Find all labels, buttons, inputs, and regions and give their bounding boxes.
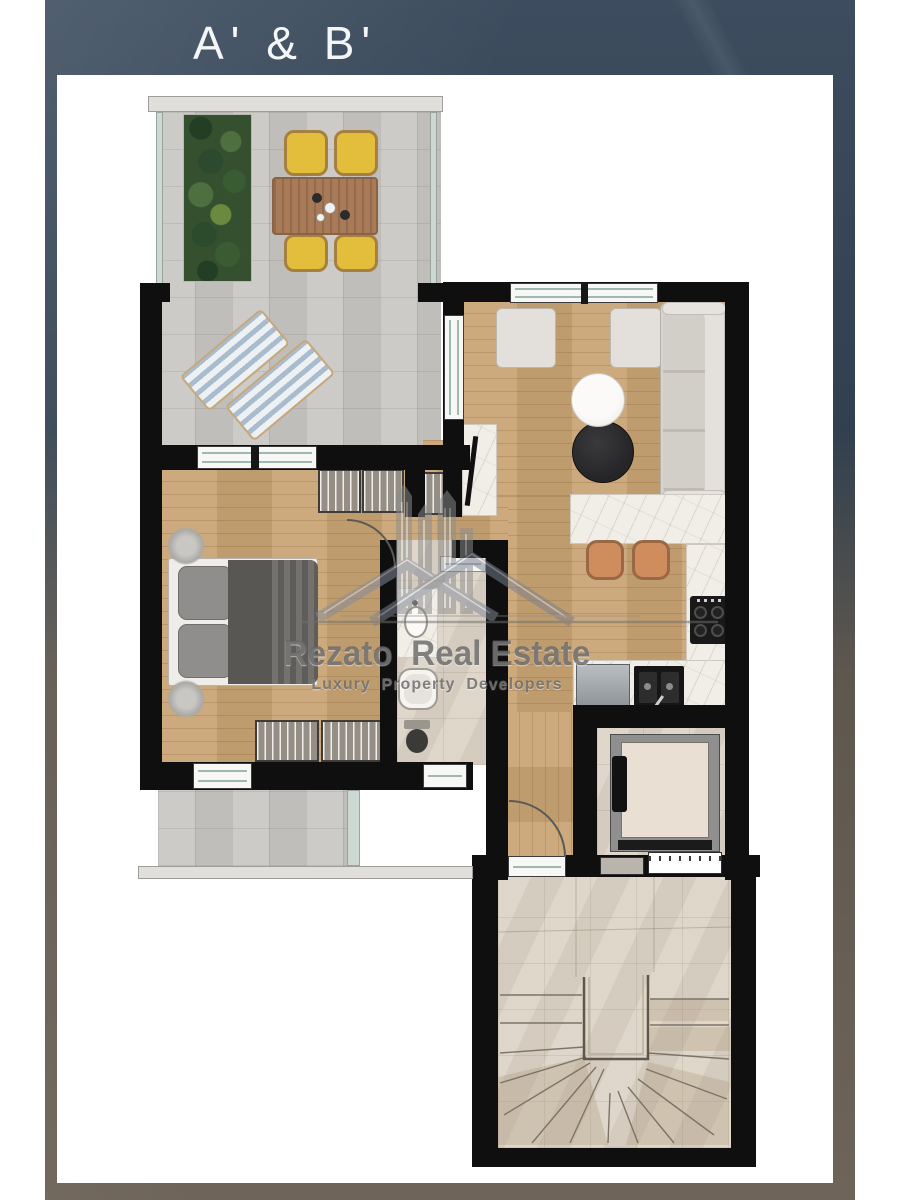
terrace-glass-rail-left <box>156 112 163 284</box>
table-plate <box>324 202 336 214</box>
window-jamb <box>581 282 588 304</box>
wardrobe <box>321 720 385 762</box>
balcony-railing <box>138 866 473 879</box>
staircase <box>498 877 731 1148</box>
bedroom-rug <box>167 680 205 718</box>
wall <box>472 855 498 1167</box>
balcony-door <box>193 763 252 789</box>
window-glass <box>449 320 451 415</box>
wall <box>140 470 162 790</box>
bathroom-window <box>423 764 467 788</box>
lower-balcony-floor <box>158 790 360 866</box>
elevator-cab <box>621 742 709 838</box>
watermark-logo-icon <box>300 482 720 632</box>
door-sill <box>513 866 561 868</box>
wardrobe <box>255 720 319 762</box>
bed-pillow <box>178 566 232 620</box>
living-pouf <box>496 308 556 368</box>
balcony-glass-rail <box>347 790 360 866</box>
window-glass <box>457 320 459 415</box>
living-pouf <box>610 308 662 368</box>
window-glass <box>428 775 462 777</box>
window-glass <box>198 780 247 782</box>
wall <box>472 1148 756 1167</box>
elevator-door-track <box>618 840 712 850</box>
terrace-window <box>444 315 464 420</box>
page-title: A' & B' <box>193 13 493 73</box>
utility-panel <box>600 857 644 875</box>
toilet-tank <box>404 720 430 729</box>
toilet-bowl <box>406 729 428 753</box>
bed-pillow <box>178 624 232 678</box>
terrace-chair <box>334 234 378 272</box>
sink-drain <box>644 683 651 690</box>
wall <box>731 855 756 1167</box>
wall <box>140 283 162 470</box>
watermark-brand: Rezato Real Estate <box>247 634 627 674</box>
entrance-door-threshold <box>508 856 566 877</box>
terrace-glass-rail-right <box>430 112 437 284</box>
wall <box>573 705 597 875</box>
sofa-back-cushions <box>703 307 725 497</box>
planter-plants <box>183 114 252 282</box>
sink-drain <box>666 683 673 690</box>
window-glass <box>198 770 247 772</box>
coffee-table-marble <box>571 373 625 427</box>
terrace-chair <box>284 234 328 272</box>
watermark-tagline: Luxury Property Developers <box>237 676 637 694</box>
terrace-top-railing <box>148 96 443 112</box>
wall <box>566 855 602 877</box>
sofa-armrest <box>662 302 726 315</box>
wall <box>418 283 443 302</box>
wall <box>573 705 745 728</box>
bedroom-rug <box>167 527 205 565</box>
table-cup <box>312 193 322 203</box>
wall <box>725 282 749 880</box>
table-cup <box>316 213 325 222</box>
elevator-door-threshold <box>648 852 722 874</box>
table-cup <box>340 210 350 220</box>
sofa-seat-cushions <box>663 314 705 492</box>
coffee-table-black <box>572 421 634 483</box>
terrace-chair <box>334 130 378 176</box>
slide: A' & B' <box>0 0 900 1200</box>
window-jamb <box>251 445 259 470</box>
elevator-mechanism <box>612 756 627 812</box>
terrace-chair <box>284 130 328 176</box>
